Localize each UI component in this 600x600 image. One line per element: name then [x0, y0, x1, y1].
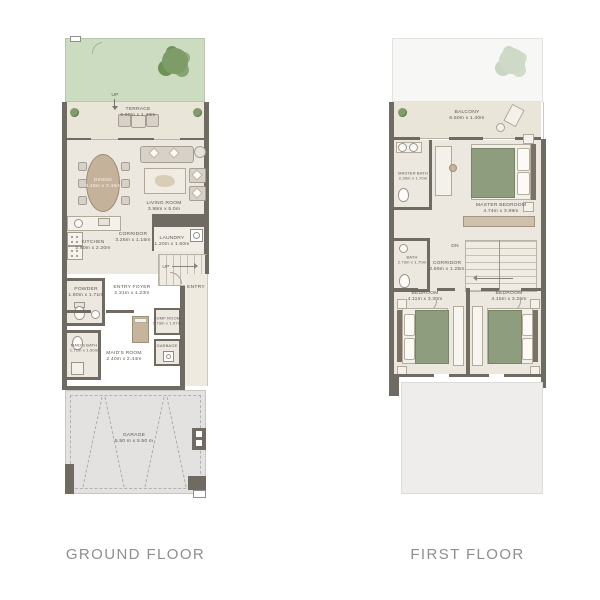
pillow-icon [404, 314, 415, 336]
toilet-icon [398, 188, 409, 202]
pillow-icon [404, 338, 415, 360]
stair-landing-line [499, 240, 500, 290]
bottom-wall-seg [394, 374, 434, 377]
window-line [420, 138, 449, 139]
bottom-wall-seg [449, 374, 489, 377]
nightstand-icon [530, 299, 540, 309]
interior-wall-seg [67, 310, 91, 313]
hob-icon [98, 218, 110, 226]
stairs-dn-arrow-icon [473, 275, 477, 281]
master-wardrobe-icon [463, 216, 535, 227]
stool-icon [449, 164, 457, 172]
pump-room-label: PUMP ROOM 0.73m x 1.07m [153, 316, 181, 326]
entry-foyer-label: ENTRY FOYER 2.31m x 1.23m [113, 284, 150, 297]
maids-room-label: MAID'S ROOM 2.40m x 2.44m [106, 350, 142, 363]
floorplan-page: { "captions": { "ground_floor": "GROUND … [0, 0, 600, 600]
first-floor-caption: FIRST FLOOR [389, 546, 546, 563]
round-table-icon [194, 146, 206, 158]
powder-label: POWDER 1.80m x 1.71m [68, 286, 103, 299]
rug-icon [144, 168, 186, 194]
rug-pattern [155, 175, 175, 187]
stairs-arrow-line [477, 278, 513, 279]
balcony-label: BALCONY 6.50m x 1.40m [449, 109, 484, 122]
bin-icon [163, 351, 174, 362]
bed-blanket [415, 310, 449, 364]
shower-icon [71, 362, 84, 375]
master-bedroom-label: MASTER BEDROOM 4.74m x 3.99m [476, 202, 526, 215]
master-bath-label: MASTER BATH 2.30m x 1.70m [398, 171, 428, 181]
garage-wall-block [188, 476, 206, 490]
sink-icon [91, 310, 100, 319]
nightstand-icon [523, 134, 534, 144]
plant-icon [193, 108, 202, 117]
dining-label: DINING 3.48m x 3.46m [85, 177, 120, 190]
headboard [397, 310, 402, 362]
wardrobe-icon [472, 306, 483, 366]
dining-chair-icon [78, 162, 87, 171]
entry-label: ENTRY [187, 284, 205, 290]
right-wall [541, 139, 546, 388]
tree-faint-icon [499, 48, 525, 74]
toilet-icon [74, 306, 85, 320]
garage-wall-block [65, 464, 74, 494]
stairs-up-arrow-icon [194, 263, 198, 269]
bed-blanket [488, 310, 522, 364]
master-headboard [531, 144, 536, 200]
plan-marker-box [70, 36, 81, 42]
headboard [533, 310, 538, 362]
sink-icon [398, 143, 407, 152]
window-line [483, 138, 515, 139]
staircase [465, 240, 537, 292]
corridor-ff-label: CORRIDOR 2.69m x 1.25m [429, 260, 464, 273]
dining-chair-icon [121, 162, 130, 171]
step-arrow-line [114, 99, 115, 106]
balcony-rail [543, 102, 544, 139]
dining-chair-icon [121, 179, 130, 188]
living-room-label: LIVING ROOM 3.98m x 5.0m [146, 200, 181, 213]
wardrobe-icon [453, 306, 464, 366]
plant-icon [398, 108, 407, 117]
dining-chair-icon [78, 196, 87, 205]
bottom-wall-seg [504, 374, 546, 377]
toilet-icon [399, 274, 410, 288]
plant-icon [70, 108, 79, 117]
garbage-label: GARBAGE [157, 343, 178, 348]
interior-wall-seg [106, 310, 134, 313]
maids-bath-label: MAID'S BATH 1.71m x 1.50m [70, 343, 98, 353]
bedroom-right-label: BEDROOM 4.15m x 3.26m [491, 290, 526, 303]
kitchen-label: KITCHEN 2.80m x 2.20m [75, 239, 110, 252]
utility-box [192, 428, 206, 450]
sink-icon [399, 244, 408, 253]
center-wall [466, 288, 470, 374]
bath-label: BATH 2.73m x 1.70m [398, 255, 426, 265]
maid-pillow-icon [134, 318, 147, 323]
sofa-icon [140, 146, 194, 163]
pillow-icon [522, 338, 533, 360]
ground-floor-plan: UP TERRACE 6.50m x 1.43m DINING 3.48m x … [62, 38, 209, 502]
step-up-label: UP [111, 92, 118, 98]
sink-icon [409, 143, 418, 152]
nightstand-icon [397, 299, 407, 309]
washer-icon [190, 229, 203, 242]
utility-switch [196, 431, 202, 437]
side-table-icon [496, 123, 505, 132]
corridor-label: CORRIDOR 3.26m x 1.15m [115, 231, 150, 244]
master-bed-blanket [471, 148, 515, 198]
plan-tag-box [193, 490, 206, 498]
wall-stub [389, 374, 399, 396]
utility-switch [196, 440, 202, 446]
pillow-icon [522, 314, 533, 336]
stairs-arrow-line [172, 266, 194, 267]
dining-chair-icon [121, 196, 130, 205]
laundry-wall-block [152, 214, 204, 227]
garage-roof-area [401, 382, 543, 494]
garage-label: GARAGE 5.50 m x 5.50 m [115, 432, 153, 445]
pillow-icon [517, 148, 530, 171]
terrace-label: TERRACE 6.50m x 1.43m [120, 106, 155, 119]
entry-walkway [185, 274, 208, 386]
first-floor-plan: BALCONY 6.50m x 1.40m MASTER BATH 2.30m … [389, 38, 546, 502]
laundry-label: LAUNDRY 1.20m x 1.60m [154, 235, 189, 248]
bedroom-left-label: BEDROOM 4.11m x 3.30m [408, 290, 443, 303]
tree-icon [162, 48, 188, 74]
ground-floor-caption: GROUND FLOOR [62, 546, 209, 563]
pillow-icon [517, 172, 530, 195]
stairs-up-label: UP [162, 264, 169, 270]
kitchen-sink-icon [74, 219, 83, 228]
stairs-dn-label: DN [451, 243, 459, 249]
step-arrow-icon [112, 106, 118, 110]
